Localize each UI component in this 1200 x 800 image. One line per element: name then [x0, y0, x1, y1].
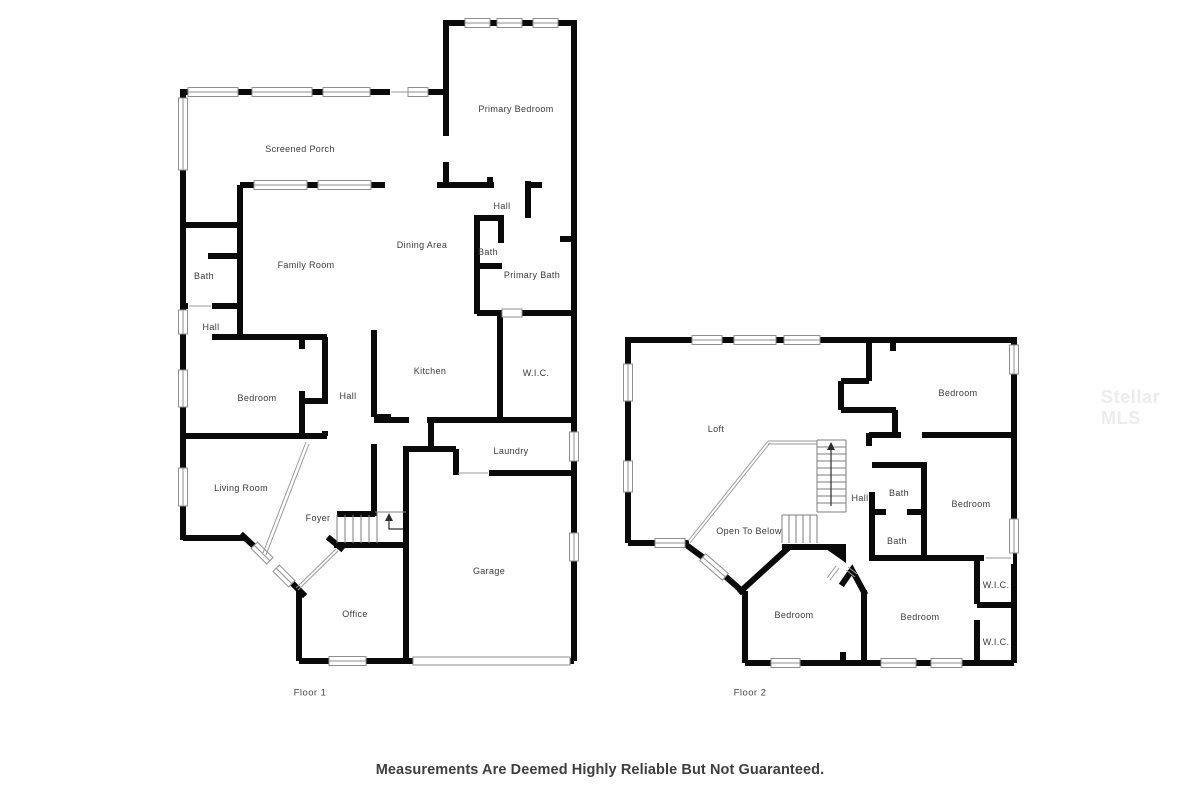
room-label-wic-2: W.I.C.: [983, 580, 1010, 590]
angled-window-icon: [273, 565, 295, 587]
stair-base-wall: [819, 544, 846, 563]
floor2-title: Floor 2: [734, 688, 767, 699]
room-label-loft: Loft: [708, 424, 724, 434]
floor1-windows: [179, 19, 579, 666]
room-label-open-to-below: Open To Below: [716, 526, 781, 536]
floorplan-drawing: [0, 0, 1200, 800]
garage-door: [413, 657, 570, 665]
floor2-stairs: [782, 440, 846, 543]
room-label-living-room: Living Room: [214, 483, 268, 493]
room-label-hall-2: Hall: [203, 322, 220, 332]
room-label-bedroom-3: Bedroom: [952, 499, 991, 509]
room-label-hall-4: Hall: [852, 493, 869, 503]
room-label-primary-bedroom: Primary Bedroom: [478, 104, 553, 114]
closet-door-opening: [320, 404, 330, 431]
room-label-bedroom-2: Bedroom: [939, 388, 978, 398]
room-label-kitchen: Kitchen: [414, 366, 446, 376]
bedroom-door-opening: [901, 430, 922, 441]
bath-door-opening: [188, 300, 212, 312]
angled-window-icon: [700, 554, 729, 580]
room-label-bedroom-5: Bedroom: [901, 612, 940, 622]
room-label-wic-3: W.I.C.: [983, 637, 1010, 647]
stellar-mls-watermark: Stellar MLS: [1101, 387, 1200, 429]
measurement-disclaimer: Measurements Are Deemed Highly Reliable …: [0, 762, 1200, 778]
floor1-plan: [179, 19, 579, 666]
porch-screen-door: [390, 87, 409, 97]
room-label-hall-1: Hall: [494, 201, 511, 211]
floor1-title: Floor 1: [294, 688, 327, 699]
room-label-primary-bath: Primary Bath: [504, 270, 560, 280]
room-label-garage: Garage: [473, 566, 505, 576]
room-label-dining-area: Dining Area: [397, 240, 447, 250]
room-label-bedroom-1: Bedroom: [238, 393, 277, 403]
bath-door-opening: [886, 507, 907, 518]
room-label-bath-2: Bath: [194, 271, 214, 281]
room-label-wic-1: W.I.C.: [523, 368, 550, 378]
room-label-office: Office: [342, 609, 367, 619]
room-label-hall-3: Hall: [340, 391, 357, 401]
wic-door-opening: [984, 552, 1013, 564]
floorplan-page: Screened Porch Primary Bedroom Hall Dini…: [0, 0, 1200, 800]
room-label-foyer: Foyer: [306, 513, 331, 523]
primary-bath-door-opening: [502, 309, 522, 317]
room-label-laundry: Laundry: [494, 446, 529, 456]
floor1-walls: [183, 20, 574, 661]
room-label-bedroom-4: Bedroom: [775, 610, 814, 620]
room-label-family-room: Family Room: [278, 260, 335, 270]
room-label-bath-3: Bath: [889, 488, 909, 498]
room-label-bath-1: Bath: [478, 247, 498, 257]
stair-direction-arrow: [389, 521, 403, 529]
room-label-bath-4: Bath: [887, 536, 907, 546]
room-label-screened-porch: Screened Porch: [265, 144, 334, 154]
